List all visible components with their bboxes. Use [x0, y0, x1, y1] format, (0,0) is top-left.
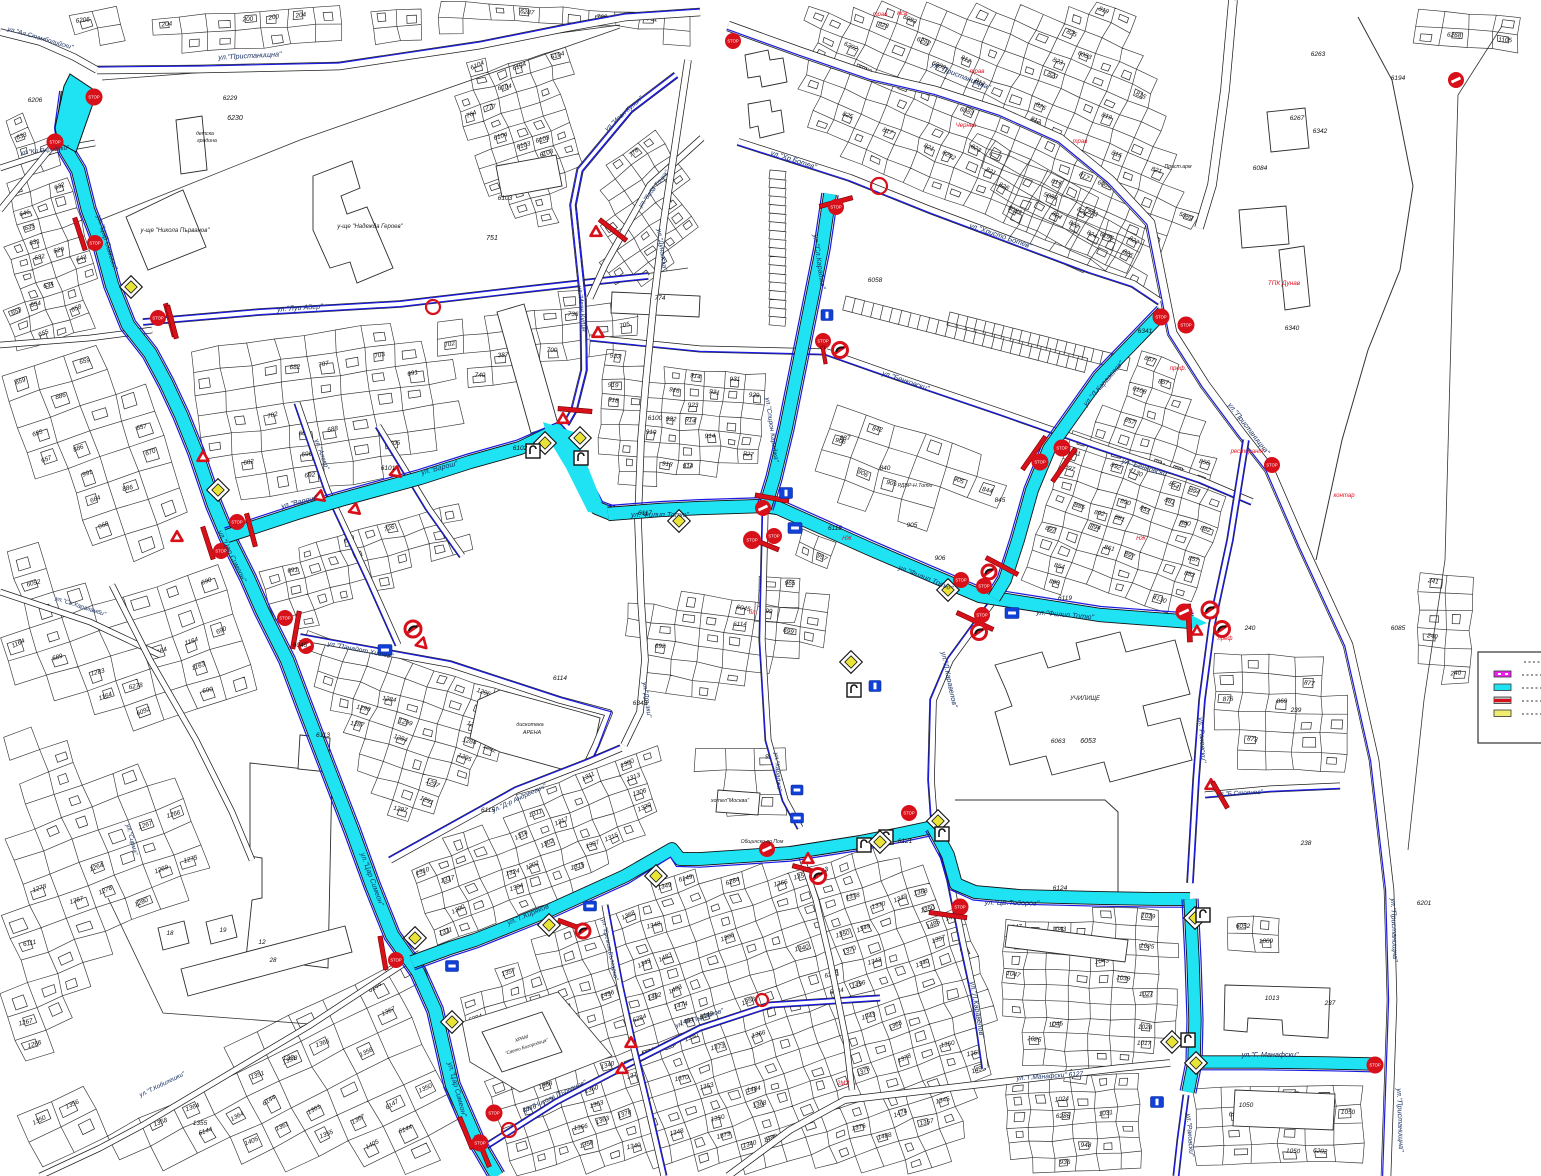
svg-text:204: 204	[160, 20, 173, 28]
svg-text:2МЗ: 2МЗ	[836, 1081, 849, 1087]
svg-text:6268: 6268	[1447, 32, 1462, 40]
svg-text:876: 876	[1223, 696, 1234, 703]
svg-text:STOP: STOP	[978, 584, 990, 589]
svg-text:мсв.: мсв.	[897, 11, 909, 17]
svg-text:УЧИЛИЩЕ: УЧИЛИЩЕ	[1069, 696, 1101, 702]
svg-text:STOP: STOP	[746, 538, 758, 543]
svg-text:STOP: STOP	[727, 39, 739, 44]
svg-text:1013: 1013	[1265, 995, 1280, 1002]
svg-text:6201: 6201	[1417, 900, 1432, 907]
svg-text:трав: трав	[970, 69, 985, 75]
svg-text:STOP: STOP	[817, 339, 829, 344]
svg-text:ресторант: ресторант	[1230, 449, 1264, 455]
svg-text:682: 682	[289, 364, 300, 372]
svg-text:6342: 6342	[1313, 128, 1328, 135]
svg-text:1050: 1050	[1286, 1148, 1301, 1156]
svg-text:6267: 6267	[1290, 115, 1305, 122]
svg-text:1050: 1050	[1341, 1109, 1356, 1116]
svg-text:240: 240	[1244, 625, 1256, 632]
svg-text:STOP: STOP	[89, 241, 101, 246]
svg-text:6117: 6117	[638, 510, 652, 517]
svg-text:хотел"Москва": хотел"Москва"	[710, 798, 750, 804]
svg-text:ул."Г. Манафски": ул."Г. Манафски"	[1241, 1050, 1299, 1059]
svg-text:845: 845	[995, 497, 1006, 504]
svg-text:922: 922	[666, 416, 677, 424]
svg-text:STOP: STOP	[488, 1111, 500, 1116]
svg-text:6053: 6053	[1080, 738, 1096, 745]
svg-text:STOP: STOP	[955, 578, 967, 583]
svg-text:STOP: STOP	[1155, 315, 1167, 320]
svg-text:240: 240	[1449, 670, 1462, 678]
svg-text:STOP: STOP	[1369, 1063, 1381, 1068]
svg-text:919: 919	[608, 382, 620, 390]
svg-text:237: 237	[1324, 1000, 1336, 1007]
svg-text:6113: 6113	[316, 732, 330, 739]
svg-text:1017: 1017	[1137, 1040, 1152, 1048]
svg-text:STOP: STOP	[88, 95, 100, 100]
svg-text:ул."ЦВ.Тодоров": ул."ЦВ.Тодоров"	[984, 898, 1040, 908]
svg-text:204: 204	[294, 11, 307, 19]
svg-text:6100: 6100	[648, 415, 663, 422]
svg-text:6085: 6085	[1391, 625, 1406, 632]
svg-text:НЖ: НЖ	[842, 536, 852, 542]
svg-text:929: 929	[749, 392, 760, 400]
svg-text:239: 239	[1290, 707, 1302, 714]
svg-text:STOP: STOP	[474, 1141, 486, 1146]
svg-text:1019: 1019	[1141, 912, 1156, 920]
svg-text:1355: 1355	[193, 1120, 208, 1127]
svg-text:бл.: бл.	[749, 610, 757, 616]
svg-text:840: 840	[880, 465, 891, 472]
svg-text:736: 736	[568, 311, 579, 318]
svg-text:STOP: STOP	[1034, 460, 1046, 465]
svg-text:1050: 1050	[1239, 1102, 1254, 1109]
svg-text:6045: 6045	[293, 642, 308, 649]
svg-text:6052: 6052	[1236, 923, 1251, 930]
svg-text:STOP: STOP	[830, 205, 842, 210]
svg-text:6114: 6114	[553, 675, 567, 682]
svg-text:6124: 6124	[1053, 885, 1068, 892]
svg-text:6102: 6102	[513, 445, 528, 452]
svg-text:869: 869	[1277, 698, 1288, 705]
svg-text:STOP: STOP	[49, 140, 61, 145]
svg-text:740: 740	[475, 372, 486, 379]
svg-text:387: 387	[497, 352, 508, 360]
svg-text:контар: контар	[1333, 493, 1355, 499]
svg-text:1358: 1358	[283, 1055, 298, 1062]
svg-text:837: 837	[840, 435, 851, 442]
svg-text:1027: 1027	[1139, 991, 1154, 998]
svg-text:918: 918	[661, 460, 673, 468]
svg-text:28: 28	[269, 957, 277, 964]
svg-text:6119: 6119	[1058, 595, 1072, 602]
svg-text:детска: детска	[196, 131, 214, 137]
svg-text:6115: 6115	[481, 807, 495, 814]
svg-text:700: 700	[547, 347, 558, 354]
svg-text:948: 948	[1081, 1142, 1092, 1149]
svg-text:6084: 6084	[1253, 165, 1268, 172]
svg-text:РДВР-Н.Тотю: РДВР-Н.Тотю	[898, 483, 933, 489]
svg-text:6114: 6114	[733, 621, 747, 628]
svg-text:STOP: STOP	[1056, 446, 1068, 451]
svg-text:6230: 6230	[227, 115, 243, 122]
svg-text:923: 923	[688, 402, 699, 409]
svg-text:6118: 6118	[828, 525, 842, 532]
svg-text:STOP: STOP	[954, 905, 966, 910]
svg-text:919: 919	[646, 429, 657, 437]
svg-text:STOP: STOP	[768, 534, 780, 539]
svg-text:преф.: преф.	[1170, 366, 1187, 372]
svg-text:1028: 1028	[1138, 1024, 1153, 1032]
svg-text:6101: 6101	[381, 465, 396, 472]
svg-text:STOP: STOP	[279, 616, 291, 621]
svg-text:238: 238	[1300, 840, 1312, 847]
svg-text:6194: 6194	[1391, 75, 1406, 82]
svg-text:у-ще "Никола Първанов": у-ще "Никола Първанов"	[140, 228, 211, 234]
svg-text:6343: 6343	[633, 700, 648, 707]
svg-text:18: 18	[167, 930, 174, 937]
svg-text:936: 936	[1060, 1159, 1071, 1166]
svg-text:19: 19	[220, 927, 227, 934]
svg-text:1009: 1009	[1259, 938, 1274, 945]
svg-text:906: 906	[935, 555, 946, 562]
svg-text:STOP: STOP	[1266, 463, 1278, 468]
svg-text:ТПК Дунав: ТПК Дунав	[1268, 280, 1301, 287]
svg-text:914: 914	[682, 463, 693, 470]
svg-text:дискотека: дискотека	[516, 722, 543, 728]
svg-text:774: 774	[655, 295, 666, 302]
svg-text:1105: 1105	[1498, 37, 1512, 44]
svg-text:STOP: STOP	[152, 316, 164, 321]
svg-text:трав: трав	[1073, 139, 1088, 145]
svg-text:6286: 6286	[1056, 1113, 1071, 1120]
svg-text:965: 965	[785, 580, 796, 587]
svg-text:6340: 6340	[1285, 325, 1300, 332]
svg-text:Прист.арм: Прист.арм	[1164, 164, 1192, 170]
svg-text:1024: 1024	[1054, 1095, 1069, 1103]
svg-text:трав: трав	[873, 12, 888, 18]
svg-text:6206: 6206	[28, 97, 43, 104]
svg-text:градина: градина	[197, 138, 217, 144]
svg-text:692: 692	[655, 643, 666, 650]
svg-text:6229: 6229	[223, 95, 238, 102]
svg-text:Чернев: Чернев	[956, 123, 976, 129]
svg-text:STOP: STOP	[390, 958, 402, 963]
svg-text:12: 12	[258, 939, 266, 946]
svg-text:692: 692	[304, 472, 316, 480]
svg-text:Общинско-пр.Пом: Общинско-пр.Пом	[741, 839, 784, 845]
svg-text:STOP: STOP	[1180, 323, 1192, 328]
svg-text:АРЕНА: АРЕНА	[522, 730, 542, 736]
svg-text:931: 931	[730, 376, 741, 383]
svg-text:6103: 6103	[498, 195, 513, 202]
svg-text:6063: 6063	[1051, 738, 1066, 745]
svg-text:6121: 6121	[898, 838, 913, 845]
svg-text:STOP: STOP	[976, 613, 988, 618]
svg-text:STOP: STOP	[903, 811, 915, 816]
svg-text:751: 751	[486, 235, 498, 242]
svg-text:6341: 6341	[1138, 328, 1153, 335]
svg-text:у-ще "Надежда Героев": у-ще "Надежда Героев"	[336, 224, 403, 230]
svg-text:НЖ: НЖ	[1136, 536, 1146, 542]
svg-text:преф: преф	[1218, 636, 1233, 642]
svg-text:914: 914	[705, 433, 716, 440]
svg-text:933: 933	[610, 353, 622, 361]
svg-text:200: 200	[241, 16, 254, 24]
svg-text:STOP: STOP	[231, 520, 243, 525]
svg-text:6058: 6058	[868, 277, 883, 284]
svg-text:905: 905	[907, 522, 918, 529]
svg-text:6263: 6263	[1311, 51, 1326, 58]
